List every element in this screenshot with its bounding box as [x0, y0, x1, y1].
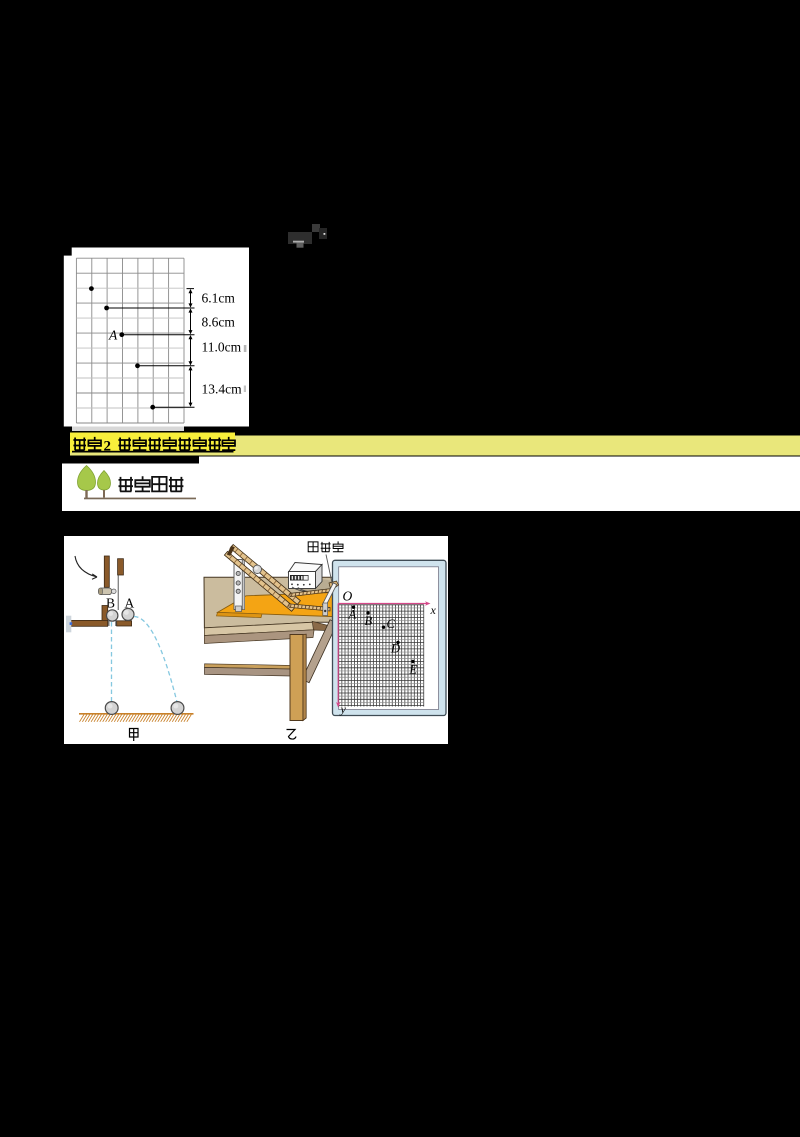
- svg-text:x: x: [430, 603, 437, 617]
- svg-text:y: y: [340, 702, 347, 716]
- svg-text:B: B: [365, 614, 373, 628]
- svg-text:6.1cm: 6.1cm: [202, 291, 236, 306]
- svg-text:A: A: [108, 328, 118, 343]
- svg-text:D: D: [390, 642, 400, 656]
- svg-text:8.6cm: 8.6cm: [202, 315, 236, 330]
- svg-text:O: O: [343, 589, 353, 604]
- svg-text:11.0cm: 11.0cm: [202, 340, 242, 355]
- svg-text:E: E: [409, 663, 418, 677]
- svg-text:A: A: [348, 608, 357, 622]
- svg-text:C: C: [387, 617, 396, 631]
- svg-text:13.4cm: 13.4cm: [202, 382, 243, 397]
